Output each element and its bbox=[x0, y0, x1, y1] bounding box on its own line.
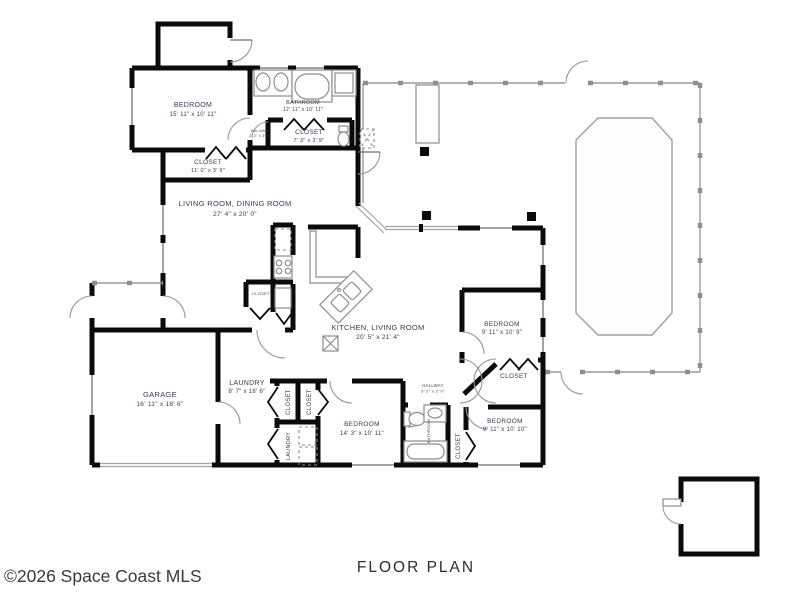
skylight bbox=[323, 336, 338, 351]
room-label-laundry-closet: LAUNDRY bbox=[286, 432, 292, 460]
porch-counter bbox=[416, 85, 439, 143]
porch-post bbox=[527, 212, 536, 221]
garage-door bbox=[100, 464, 212, 467]
room-dims-kitchen-living: 20' 5" x 21' 4" bbox=[356, 334, 400, 341]
shed-door-arc bbox=[663, 506, 681, 524]
washer bbox=[299, 427, 317, 445]
room-dims-bedroom2: 9' 11" x 10' 9" bbox=[482, 330, 522, 336]
room-dims-closet-bed1: 11' 0" x 3' 9" bbox=[191, 168, 225, 174]
room-label-bedroom1: BEDROOM bbox=[174, 102, 212, 109]
water-heater bbox=[360, 129, 374, 148]
room-dims-hallway: 6' 2" x 2' 0" bbox=[421, 389, 445, 394]
room-label-bathroom2: BATHROOM bbox=[427, 419, 431, 443]
room-label-hallway: HALLWAY bbox=[422, 383, 443, 388]
porch-screen-door-arc-top bbox=[566, 61, 588, 83]
porch-screen-door-arc-bottom bbox=[561, 372, 583, 394]
toilet-tank bbox=[339, 126, 348, 132]
shed bbox=[663, 479, 757, 554]
kitchen-cabinet bbox=[275, 288, 291, 308]
room-label-closet-a: CLOSET bbox=[286, 389, 292, 415]
room-dims-laundry: 8' 7" x 18' 6" bbox=[228, 389, 265, 395]
copyright-text: ©2026 Space Coast MLS bbox=[4, 566, 202, 586]
laundry-appliances bbox=[299, 427, 317, 465]
room-dims-bedroom3: 9' 11" x 10' 10" bbox=[483, 427, 527, 433]
bathroom2-fixtures bbox=[404, 405, 447, 462]
room-label-kitchen-living: KITCHEN, LIVING ROOM bbox=[331, 323, 424, 332]
toilet bbox=[338, 132, 349, 146]
room-label-bedroom3: BEDROOM bbox=[487, 418, 523, 425]
room-dims-hall-small: 2' 2" x 3' 9" bbox=[249, 134, 271, 138]
porch-post bbox=[420, 147, 429, 156]
dryer bbox=[299, 447, 317, 465]
slider-mullion bbox=[419, 224, 423, 232]
diagonal-sliding-door bbox=[356, 203, 387, 233]
toilet bbox=[409, 413, 425, 426]
room-dims-bathroom1: 12' 11" x 10' 11" bbox=[283, 107, 323, 113]
refrigerator bbox=[275, 229, 291, 250]
room-dims-living-dining: 27' 4" x 20' 0" bbox=[213, 211, 257, 218]
floor-plan-page: BEDROOM 15' 11" x 10' 11" BATHROOM 12' 1… bbox=[0, 0, 804, 603]
footer: ©2026 Space Coast MLS FLOOR PLAN bbox=[4, 559, 475, 586]
room-label-bedroom2: BEDROOM bbox=[484, 321, 520, 328]
bathtub bbox=[292, 70, 332, 102]
shower bbox=[332, 70, 356, 96]
room-label-laundry: LAUNDRY bbox=[229, 380, 264, 387]
room-label-closet-bath: CLOSET bbox=[295, 129, 323, 136]
room-dims-garage: 16' 11" x 18' 6" bbox=[136, 401, 184, 408]
room-label-closet-bed2: CLOSET bbox=[500, 373, 528, 380]
swimming-pool bbox=[576, 118, 672, 335]
floor-plan-drawing: BEDROOM 15' 11" x 10' 11" BATHROOM 12' 1… bbox=[0, 0, 804, 603]
room-dims-bedroom4: 14' 3" x 10' 11" bbox=[340, 431, 384, 437]
page-title: FLOOR PLAN bbox=[357, 559, 475, 576]
room-label-closet-bed3: CLOSET bbox=[456, 433, 462, 459]
room-dims-bedroom1: 15' 11" x 10' 11" bbox=[169, 112, 216, 118]
room-label-closet-b: CLOSET bbox=[307, 389, 313, 415]
room-label-hall-small: HALLWAY bbox=[251, 129, 270, 133]
room-label-bedroom4: BEDROOM bbox=[344, 421, 380, 428]
room-label-closet-bed1: CLOSET bbox=[194, 159, 222, 166]
porch-post bbox=[422, 211, 431, 220]
room-label-living-dining: LIVING ROOM, DINING ROOM bbox=[178, 199, 291, 208]
room-label-garage: GARAGE bbox=[143, 390, 177, 399]
shed-door-leaf bbox=[663, 499, 681, 506]
range-stove bbox=[274, 256, 292, 278]
room-label-bathroom1: BATHROOM bbox=[286, 100, 320, 106]
room-label-closet-kitchen: CLOSET bbox=[252, 291, 270, 296]
room-dims-closet-bath: 7' 3" x 3' 9" bbox=[293, 138, 324, 144]
